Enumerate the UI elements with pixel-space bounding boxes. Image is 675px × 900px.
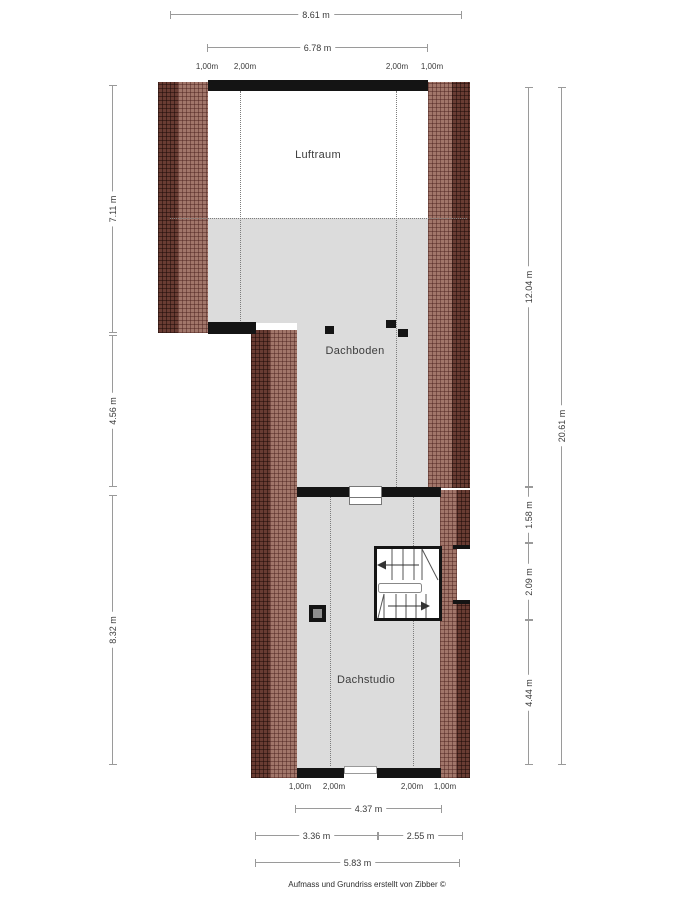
- dim-right-seg1-label: 1.58 m: [524, 497, 534, 533]
- dim-width-inner: 6.78 m: [207, 47, 428, 48]
- wall-step-cap: [208, 322, 256, 334]
- wall-right-lower-inner: [440, 490, 457, 778]
- wall-bottom-left: [297, 768, 344, 778]
- wall-top: [208, 80, 428, 91]
- roofline-mark-top-4: 1,00m: [421, 62, 443, 71]
- dim-bottom-right: 2.55 m: [378, 835, 463, 836]
- roofline-mark-top-1: 1,00m: [196, 62, 218, 71]
- dim-right-seg2: 2.09 m: [528, 543, 529, 620]
- dim-right-dachboden: 12.04 m: [528, 87, 529, 487]
- divider-opening-line: [350, 497, 381, 498]
- wall-right-upper-inner: [428, 82, 452, 488]
- wall-divider-right: [380, 487, 441, 497]
- height-line-upper-left: [240, 91, 241, 321]
- wall-left-lower-inner: [270, 330, 297, 778]
- wall-bottom-right: [377, 768, 441, 778]
- room-label-dachstudio: Dachstudio: [337, 674, 395, 686]
- divider-opening: [349, 486, 382, 505]
- dim-width-inner-label: 6.78 m: [300, 43, 336, 53]
- height-line-lower-right: [413, 497, 414, 766]
- room-label-luftraum: Luftraum: [295, 149, 341, 161]
- dim-right-seg1: 1.58 m: [528, 487, 529, 543]
- height-line-upper-right: [396, 91, 397, 487]
- dim-left-lower: 8.32 m: [112, 495, 113, 765]
- room-label-dachboden: Dachboden: [326, 345, 385, 357]
- wall-divider-left: [297, 487, 352, 497]
- dim-left-lower-label: 8.32 m: [108, 612, 118, 648]
- dim-bottom-left: 3.36 m: [255, 835, 378, 836]
- post-2: [386, 320, 396, 328]
- window-tick-bottom: [453, 600, 470, 604]
- dim-right-total: 20.61 m: [561, 87, 562, 765]
- wall-left-upper-inner: [178, 82, 208, 333]
- wall-left-upper-outer: [158, 82, 178, 333]
- dim-bottom-total: 5.83 m: [255, 862, 460, 863]
- wall-right-upper-outer: [452, 82, 470, 488]
- dim-left-upper-label: 7.11 m: [108, 192, 118, 227]
- dim-width-total-label: 8.61 m: [298, 10, 334, 20]
- footer-credit: Aufmass und Grundriss erstellt von Zibbe…: [288, 880, 446, 889]
- dim-left-upper: 7.11 m: [112, 85, 113, 333]
- height-line-lower-left: [330, 497, 331, 766]
- staircase: [374, 546, 442, 621]
- dim-left-middle-label: 4.56 m: [108, 393, 118, 429]
- post-3: [398, 329, 408, 337]
- chimney-flue: [313, 609, 322, 618]
- roofline-mark-bottom-3: 2,00m: [401, 782, 423, 791]
- dim-width-total: 8.61 m: [170, 14, 462, 15]
- post-1: [325, 326, 334, 334]
- wall-right-lower-outer: [457, 490, 470, 778]
- dim-bottom-total-label: 5.83 m: [340, 858, 376, 868]
- roofline-mark-bottom-2: 2,00m: [323, 782, 345, 791]
- roofline-mark-top-2: 2,00m: [234, 62, 256, 71]
- dachstudio-floor: [297, 497, 440, 768]
- dim-right-dachboden-label: 12.04 m: [524, 267, 534, 308]
- dim-left-middle: 4.56 m: [112, 335, 113, 487]
- roofline-mark-top-3: 2,00m: [386, 62, 408, 71]
- right-wall-window: [457, 549, 470, 600]
- roofline-mark-bottom-1: 1,00m: [289, 782, 311, 791]
- floor-plan-page: { "rooms": { "luftraum": "Luftraum", "da…: [0, 0, 675, 900]
- dim-bottom-left-label: 3.36 m: [299, 831, 335, 841]
- dim-right-seg2-label: 2.09 m: [524, 564, 534, 600]
- dim-right-seg3-label: 4.44 m: [524, 675, 534, 711]
- dim-bottom-inner-label: 4.37 m: [351, 804, 387, 814]
- dachboden-floor-upper: [208, 218, 428, 323]
- dim-bottom-inner: 4.37 m: [295, 808, 442, 809]
- dim-bottom-right-label: 2.55 m: [403, 831, 439, 841]
- roofline-mark-bottom-4: 1,00m: [434, 782, 456, 791]
- height-line-horizontal: [170, 218, 467, 219]
- wall-left-lower-outer: [251, 330, 270, 778]
- dim-right-total-label: 20.61 m: [557, 406, 567, 447]
- dim-right-seg3: 4.44 m: [528, 620, 529, 765]
- bottom-wall-window: [344, 766, 377, 774]
